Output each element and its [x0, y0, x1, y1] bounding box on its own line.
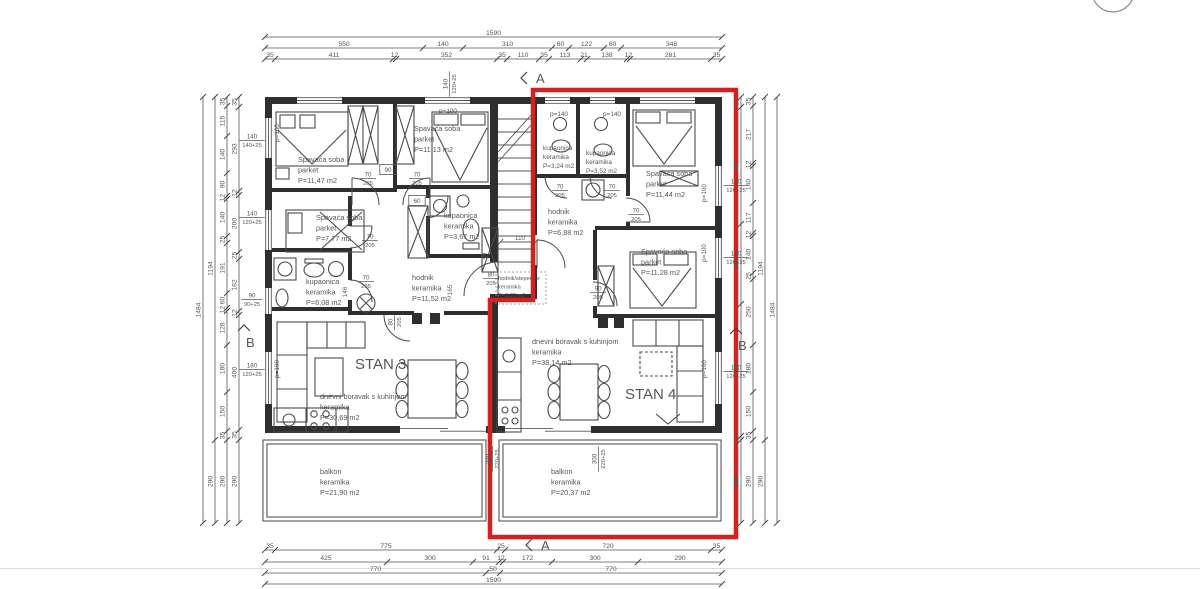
dim-label: 775: [380, 543, 392, 550]
fraction-label: 70205: [604, 184, 620, 200]
dim-label: 348: [666, 41, 678, 48]
svg-text:B: B: [738, 338, 747, 353]
dim-label: 290: [208, 476, 215, 488]
room-label: hodnik: [412, 273, 434, 282]
svg-text:205: 205: [361, 284, 371, 290]
room-label: P=11,28 m2: [641, 268, 680, 277]
svg-text:70: 70: [633, 208, 640, 215]
dim-label: 140: [220, 212, 227, 224]
dim-label: 250: [746, 306, 753, 318]
svg-text:205: 205: [412, 181, 422, 187]
dim-label: 140: [746, 249, 753, 261]
dim-label: 35: [746, 98, 753, 106]
fraction-label: 140120+25: [239, 211, 264, 227]
dim-label: 1194: [758, 261, 765, 276]
dim-label: 180: [220, 363, 227, 375]
room-label: kupaonica: [543, 145, 573, 152]
dim-label: 21: [580, 52, 588, 59]
room-label: parket: [414, 135, 434, 144]
plan-label: p=100: [439, 108, 457, 115]
svg-text:70: 70: [414, 172, 421, 179]
stan4-selection-outline: [490, 90, 736, 537]
room-label: keramika: [412, 284, 443, 293]
dim-label: 113: [560, 52, 571, 59]
dim-label: 25: [220, 236, 227, 244]
dim-label: 35: [232, 98, 239, 106]
room-label: keramika: [551, 478, 582, 487]
room-label: P=7,77 m2: [316, 234, 352, 243]
svg-text:220+25: 220+25: [495, 449, 501, 469]
dim-label: 217: [746, 129, 753, 141]
dim-label: 91: [482, 555, 490, 562]
room-label: Spavaća soba: [646, 169, 693, 178]
plan-label: p=100: [274, 360, 281, 378]
dim-label: 1590: [486, 30, 501, 37]
dim-label: 425: [320, 555, 332, 562]
room-label: keramika: [498, 285, 522, 291]
dim-label: 290: [232, 476, 239, 488]
svg-text:205: 205: [486, 281, 496, 287]
room-label: parket: [316, 224, 336, 233]
dim-label: 117: [746, 212, 753, 223]
room-label: P=3,52 m2: [586, 168, 618, 175]
dim-label: 290: [220, 476, 227, 488]
svg-text:90: 90: [249, 293, 256, 300]
dim-label: 293: [232, 143, 239, 155]
svg-text:205: 205: [363, 181, 373, 187]
room-label: P=11,13 m2: [414, 145, 453, 154]
dim-label: 150: [220, 406, 227, 418]
plan-label: p=140: [550, 111, 568, 118]
dim-label: 1484: [770, 302, 777, 317]
room-label: P=11,52 m2: [412, 294, 451, 303]
plan-label: 90: [384, 167, 392, 174]
dim-label: 35: [746, 432, 753, 440]
dim-label: 182: [232, 279, 239, 291]
room-label: keramika: [532, 348, 563, 357]
fraction-label: 9090+25: [242, 293, 263, 309]
dim-label: 140: [220, 149, 227, 161]
dim-label: 310: [502, 41, 514, 48]
dim-label: 191: [220, 262, 227, 274]
svg-text:B: B: [246, 335, 255, 350]
dim-label: 90: [220, 181, 227, 189]
room-label: parket: [298, 166, 318, 175]
room-label: dnevni boravak s kuhinjom: [532, 337, 618, 346]
fraction-label: 300220+25: [592, 446, 608, 471]
room-label: keramika: [548, 218, 579, 227]
dim-label: 35: [713, 543, 721, 550]
room-label: keramika: [586, 159, 612, 166]
fraction-label: 70205: [552, 184, 568, 200]
room-label: balkon: [320, 467, 342, 476]
plan-label: 110: [515, 235, 526, 242]
dim-label: 140: [746, 179, 753, 191]
room-label: kupaonica: [444, 211, 478, 220]
svg-text:300: 300: [592, 453, 599, 464]
dim-label: 1194: [208, 261, 215, 276]
svg-text:90: 90: [595, 286, 602, 293]
svg-text:90+25: 90+25: [244, 302, 260, 308]
svg-text:205: 205: [631, 217, 641, 223]
dim-label: 25: [746, 272, 753, 280]
dim-label: 110: [518, 52, 529, 59]
floor-plan-drawing: 1590550140310601226034835411123523511035…: [0, 0, 1200, 589]
svg-text:70: 70: [365, 172, 372, 179]
dim-label: 12: [232, 189, 239, 197]
dim-label: 35: [220, 98, 227, 106]
room-label: kupaonica: [586, 150, 616, 157]
dim-label: 12: [232, 309, 239, 317]
dim-label: 50: [489, 566, 497, 573]
svg-text:70: 70: [363, 275, 370, 282]
dim-label: 550: [338, 41, 350, 48]
room-label: keramika: [444, 222, 475, 231]
dim-label: 407: [734, 160, 741, 172]
svg-text:140: 140: [731, 251, 742, 258]
dim-label: 138: [601, 52, 613, 59]
svg-text:120+25: 120+25: [726, 188, 746, 194]
dim-label: 25: [232, 252, 239, 260]
dim-label: 60: [557, 41, 565, 48]
dim-label: 300: [424, 555, 436, 562]
room-label: keramika: [320, 403, 351, 412]
dim-label: 25: [497, 543, 505, 550]
dim-label: 12: [220, 194, 227, 202]
dim-label: 300: [589, 555, 601, 562]
dim-label: 35: [266, 52, 274, 59]
svg-text:120+25: 120+25: [242, 220, 262, 226]
dim-label: 115: [220, 115, 227, 126]
svg-text:A: A: [541, 538, 550, 553]
dim-label: 290: [674, 555, 686, 562]
room-label: hodnik: [548, 207, 570, 216]
room-label: dnevni boravak s kuhinjom: [320, 392, 406, 401]
dim-label: 35: [540, 52, 548, 59]
room-label: P=11,47 m2: [298, 176, 337, 185]
room-label: parket: [646, 180, 666, 189]
fraction-label: 140120+25: [443, 71, 459, 96]
svg-text:A: A: [536, 71, 545, 86]
svg-text:140: 140: [443, 78, 450, 89]
plan-label: p=100: [701, 360, 708, 378]
room-label: P=21,90 m2: [320, 488, 360, 497]
room-label: P=11,44 m2: [646, 190, 685, 199]
dim-label: 35: [498, 52, 506, 59]
room-label: hodnik/stepenice: [498, 276, 540, 282]
svg-text:180: 180: [731, 365, 742, 372]
room-label: P=3,32 m2: [498, 293, 525, 299]
room-label: Spavaća soba: [641, 247, 688, 256]
svg-text:70: 70: [557, 184, 564, 191]
dim-label: 35: [734, 434, 741, 442]
dim-label: 12: [746, 161, 753, 169]
dim-label: 770: [370, 566, 382, 573]
room-label: keramika: [320, 478, 351, 487]
plan-label: p=100: [701, 244, 708, 262]
section-marker-b: B: [730, 328, 747, 353]
dim-label: 352: [441, 52, 453, 59]
dim-label: 172: [522, 555, 534, 562]
room-label: P=20,37 m2: [551, 488, 591, 497]
dim-label: 140: [437, 41, 449, 48]
svg-text:205: 205: [365, 243, 375, 249]
svg-text:70: 70: [609, 184, 616, 191]
svg-text:120+25: 120+25: [726, 374, 746, 380]
dim-label: 12: [220, 306, 227, 314]
svg-text:205: 205: [607, 193, 617, 199]
dim-label: 35: [220, 432, 227, 440]
section-marker-a: A: [526, 538, 550, 553]
svg-text:220+25: 220+25: [601, 449, 607, 469]
dim-label: 60: [220, 297, 227, 305]
svg-text:205: 205: [593, 295, 603, 301]
svg-text:205: 205: [397, 317, 403, 327]
svg-text:205: 205: [555, 193, 565, 199]
apartment-label: STAN 4: [625, 386, 676, 403]
svg-text:120+25: 120+25: [242, 372, 262, 378]
dim-label: 290: [758, 476, 765, 488]
dim-label: 281: [665, 52, 677, 59]
dim-label: 128: [220, 322, 227, 334]
dim-label: 12: [625, 52, 633, 59]
svg-text:120+25: 120+25: [726, 260, 746, 266]
dim-label: 35: [266, 543, 274, 550]
dim-label: 411: [329, 52, 340, 59]
room-label: P=6,88 m2: [548, 228, 584, 237]
plan-label: p=140: [603, 111, 621, 118]
dim-label: 35: [713, 52, 721, 59]
svg-text:80: 80: [388, 318, 395, 325]
dim-label: 770: [605, 566, 617, 573]
fraction-label: 140140+25: [239, 134, 264, 150]
fraction-label: 70205: [360, 172, 376, 188]
dim-label: 290: [734, 476, 741, 488]
fraction-label: 80205: [388, 314, 404, 330]
dim-label: 35: [734, 98, 741, 106]
fraction-label: 180120+25: [239, 363, 264, 379]
room-label: balkon: [551, 467, 573, 476]
room-label: parket: [641, 258, 661, 267]
dim-label: 200: [232, 218, 239, 230]
dim-label: 1590: [486, 577, 501, 584]
fraction-label: 80205: [483, 272, 499, 288]
dim-label: 60: [609, 41, 617, 48]
plan-label: 146: [342, 286, 349, 297]
section-marker-b: B: [238, 325, 255, 350]
room-label: Spavaća soba: [316, 213, 363, 222]
section-marker-a: A: [521, 71, 545, 86]
apartment-label: STAN 3: [355, 356, 406, 373]
dim-label: 720: [602, 543, 614, 550]
svg-text:180: 180: [247, 363, 258, 370]
svg-text:80: 80: [488, 272, 495, 279]
svg-text:300: 300: [486, 453, 493, 464]
page-corner-circle: [1092, 0, 1134, 12]
room-label: P=3,67 m2: [444, 232, 480, 241]
svg-text:140+25: 140+25: [242, 143, 262, 149]
svg-text:140: 140: [731, 179, 742, 186]
dim-label: 122: [581, 41, 593, 48]
room-label: P=30,69 m2: [320, 413, 360, 422]
dim-label: 290: [746, 476, 753, 488]
room-label: P=6,08 m2: [306, 298, 342, 307]
room-label: P=38,14 m2: [532, 358, 572, 367]
plan-label: p=100: [701, 184, 708, 202]
dim-label: 35: [232, 431, 239, 439]
dim-label: 180: [746, 363, 753, 375]
room-label: keramika: [543, 154, 569, 161]
room-label: P=3,24 m2: [543, 163, 575, 170]
plan-label: 60: [413, 198, 421, 205]
svg-text:140: 140: [247, 211, 258, 218]
floorplan-page: 1590550140310601226034835411123523511035…: [0, 0, 1200, 589]
svg-text:140: 140: [247, 134, 258, 141]
dim-label: 150: [746, 406, 753, 418]
fraction-label: 70205: [628, 208, 644, 224]
dim-label: 12: [391, 52, 399, 59]
dim-label: 400: [232, 367, 239, 379]
room-label: Spavaća soba: [414, 124, 461, 133]
svg-text:120+25: 120+25: [452, 74, 458, 94]
dim-label: 1484: [196, 302, 203, 317]
dim-label: 12: [746, 231, 753, 239]
plan-label: p=100: [274, 124, 281, 142]
plan-label: 44: [481, 252, 488, 260]
room-label: Spavaća soba: [298, 155, 345, 164]
room-label: kupaonica: [306, 277, 340, 286]
svg-text:70: 70: [367, 234, 374, 241]
room-label: keramika: [306, 288, 337, 297]
dim-label: 12: [497, 555, 505, 562]
